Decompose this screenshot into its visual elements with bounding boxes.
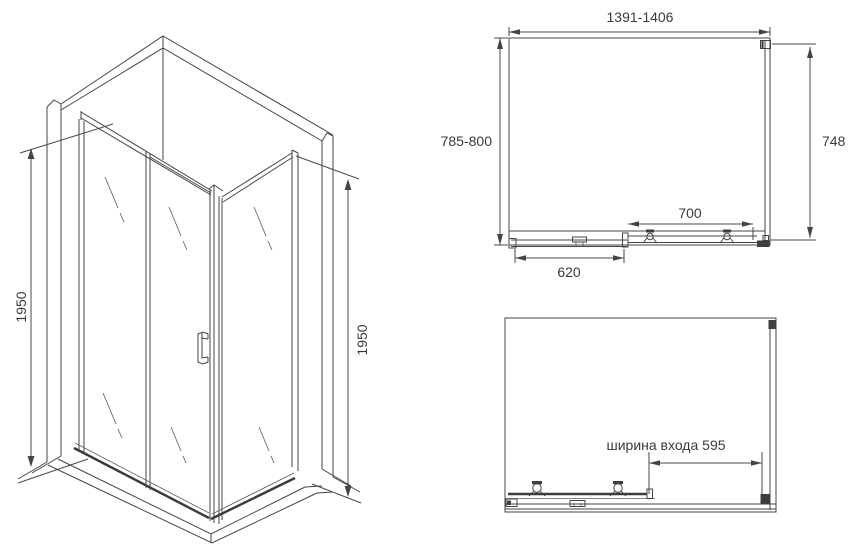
plan-side-dimension: 748 — [770, 44, 846, 240]
wall-bracket-bottom — [761, 494, 771, 505]
front-sliding-door — [505, 481, 655, 507]
plan-sliding-door — [509, 233, 628, 248]
plan-door-dimension: 620 — [515, 249, 624, 280]
plan-depth-dimension: 785-800 — [441, 38, 508, 245]
wall-bracket-bottom — [757, 241, 770, 248]
plan-width-label: 1391-1406 — [607, 9, 674, 25]
technical-drawing: 1950 1950 — [0, 0, 856, 551]
front-view: ширина входа 595 — [505, 318, 776, 512]
plan-depth-label: 785-800 — [441, 133, 493, 149]
entry-width-dimension: ширина входа 595 — [606, 437, 762, 495]
drawing-canvas: 1950 1950 — [0, 0, 856, 551]
plan-width-dimension: 1391-1406 — [509, 9, 770, 36]
plan-side-label: 748 — [822, 133, 846, 149]
plan-outline — [509, 38, 771, 247]
shower-tray — [48, 443, 333, 543]
plan-door-label: 620 — [557, 264, 581, 280]
wall-battens — [18, 36, 360, 492]
iso-height-left-label: 1950 — [13, 291, 29, 322]
door-handle — [198, 332, 208, 364]
iso-height-dimension-left: 1950 — [13, 124, 113, 483]
plan-fixed-panel-track — [628, 230, 757, 244]
wall-bracket-top — [769, 320, 777, 329]
entry-width-label: ширина входа 595 — [606, 437, 725, 453]
plan-view: 1391-1406 785-800 748 700 620 — [441, 9, 846, 280]
front-outline — [505, 318, 776, 512]
glass-reflection-marks — [103, 177, 274, 463]
plan-panel-label: 700 — [678, 205, 702, 221]
iso-view: 1950 1950 — [13, 36, 370, 543]
iso-height-right-label: 1950 — [354, 324, 370, 355]
